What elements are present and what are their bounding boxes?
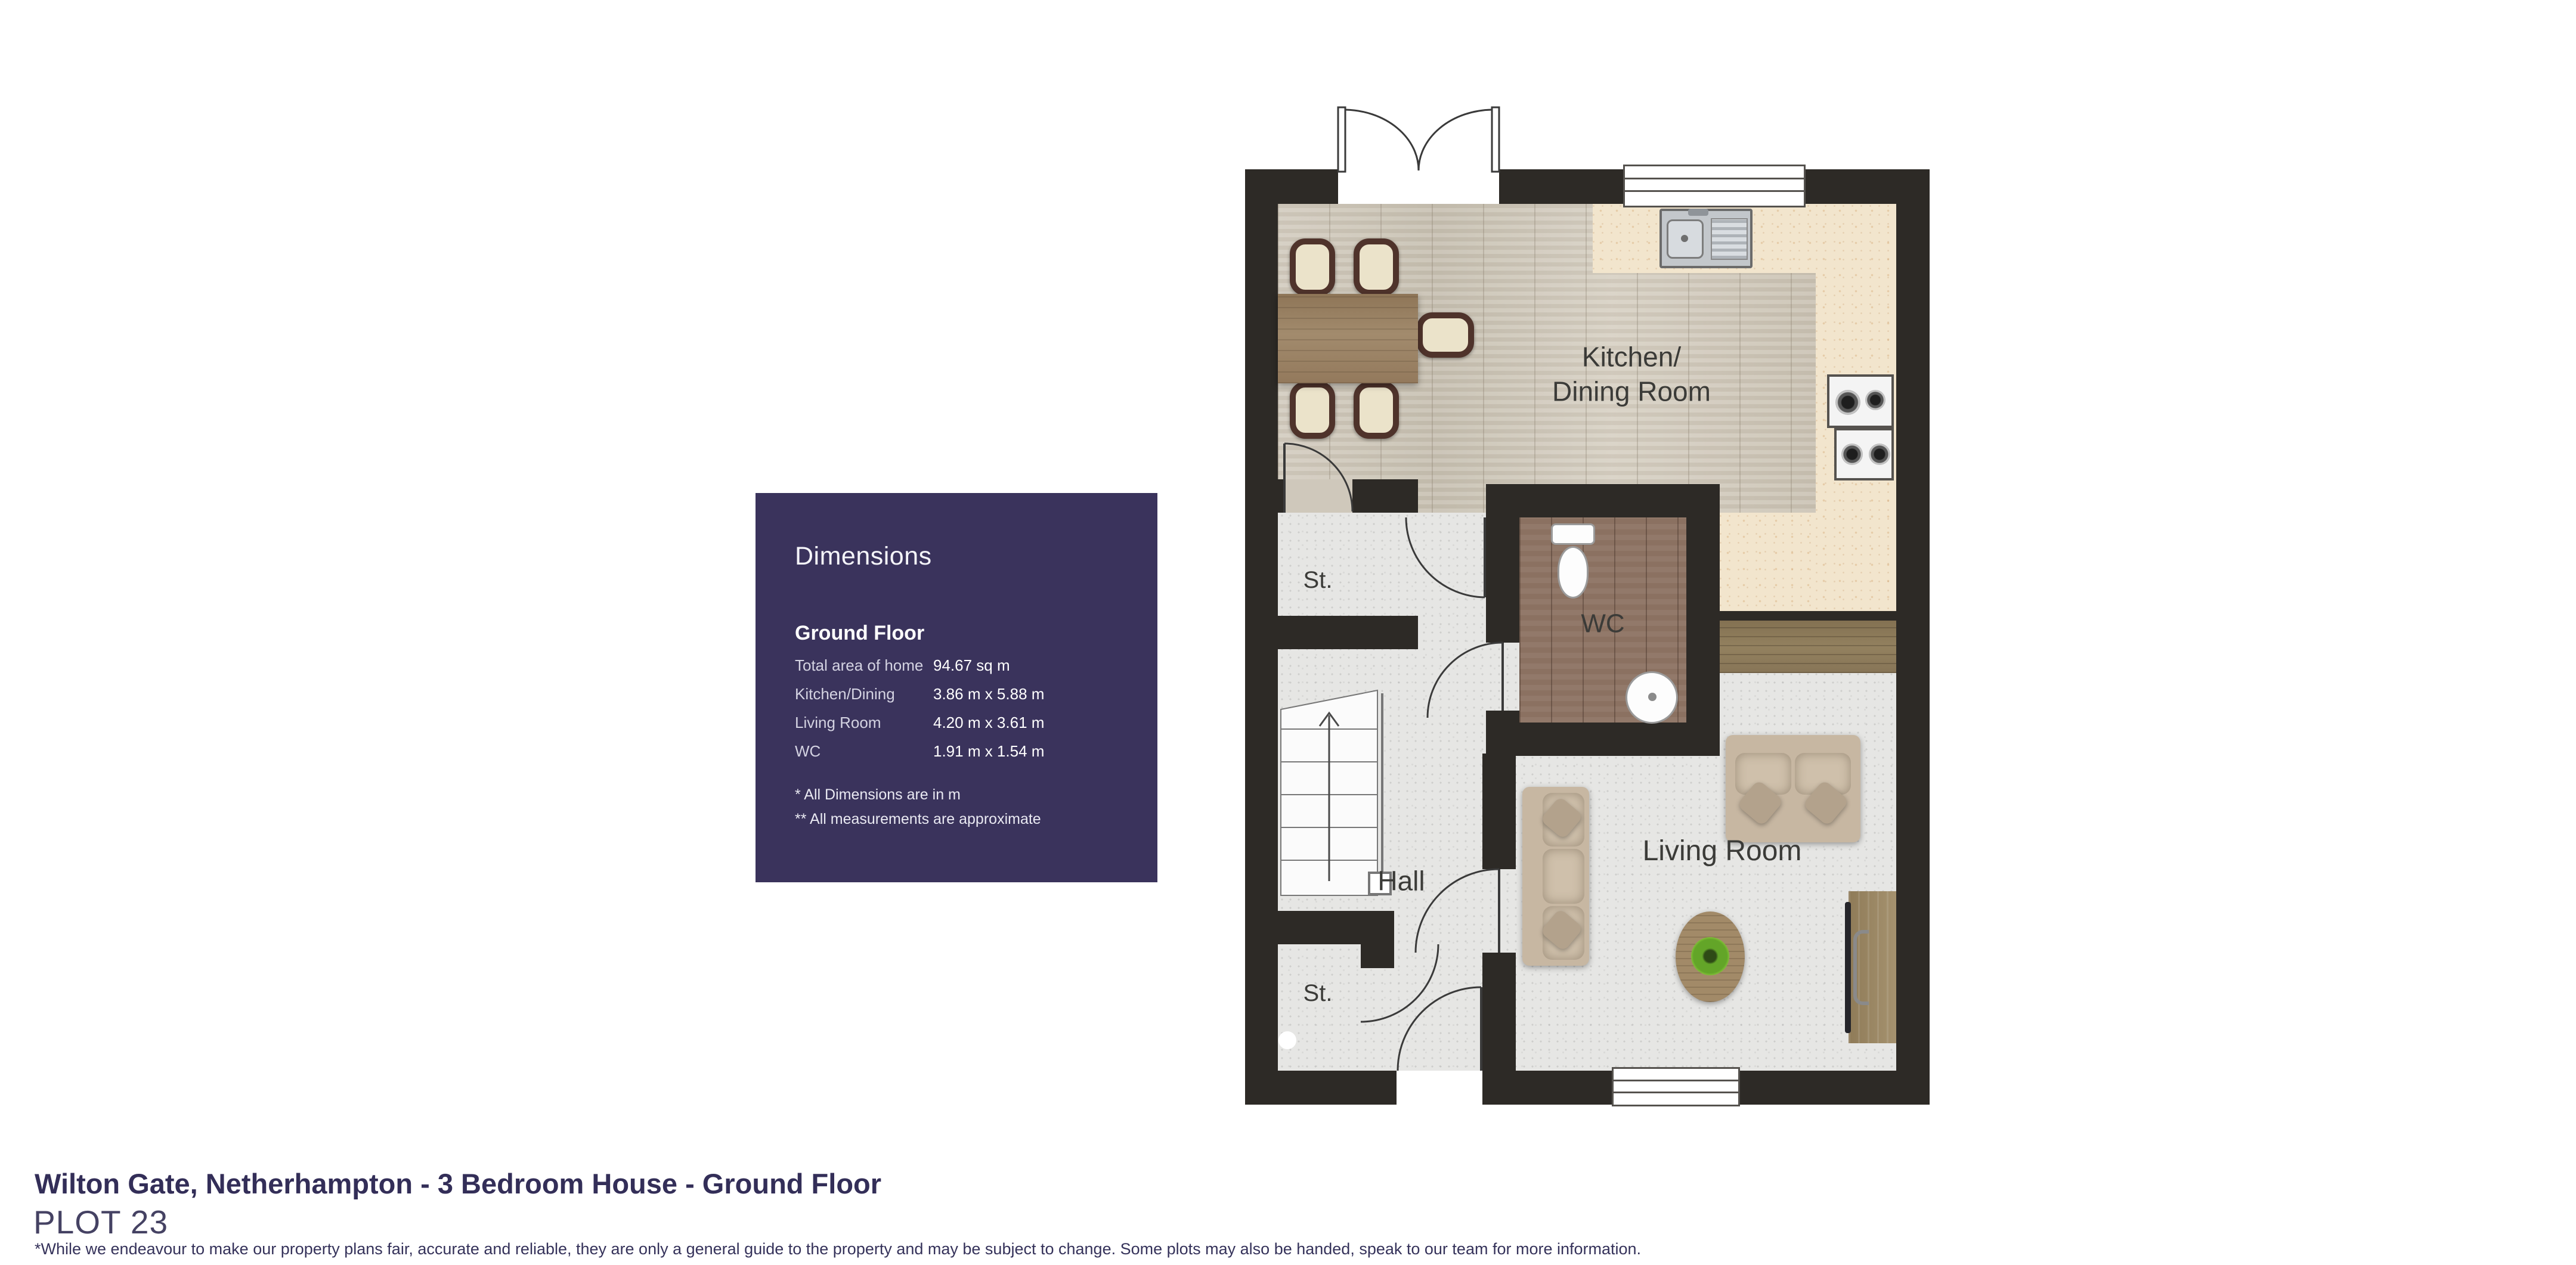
wc-door-icon (1428, 643, 1503, 718)
plot-number: PLOT 23 (33, 1203, 168, 1241)
dining-chair (1417, 312, 1474, 358)
dimensions-rows: Total area of home 94.67 sq m Kitchen/Di… (795, 650, 1129, 765)
dimension-label: WC (795, 742, 821, 761)
dimension-label: Living Room (795, 714, 881, 732)
floor-plan: Kitchen/ Dining Room WC Hall Living Room… (1245, 106, 1930, 1105)
dining-table (1278, 294, 1418, 383)
dimension-value: 94.67 sq m (933, 656, 1010, 675)
dimensions-section-title: Ground Floor (795, 622, 924, 645)
room-label-wc: WC (1581, 607, 1624, 640)
room-label-hall: Hall (1377, 864, 1425, 898)
dining-chair (1290, 238, 1335, 296)
page-title: Wilton Gate, Netherhampton - 3 Bedroom H… (35, 1167, 881, 1200)
dining-chair (1354, 238, 1399, 296)
kitchen-hall-door-icon (1406, 517, 1485, 597)
hob-bottom-icon (1834, 428, 1894, 480)
french-doors-icon (1338, 107, 1499, 204)
dimension-row: WC 1.91 m x 1.54 m (795, 736, 1129, 765)
tv-icon (1845, 902, 1851, 1033)
dimension-row: Kitchen/Dining 3.86 m x 5.88 m (795, 679, 1129, 708)
dimensions-panel-title: Dimensions (795, 542, 932, 571)
room-label-storage-bottom: St. (1304, 978, 1333, 1008)
dimension-label: Total area of home (795, 656, 923, 675)
floorplan-page: Dimensions Ground Floor Total area of ho… (0, 0, 2576, 1265)
front-door-icon (1398, 987, 1481, 1071)
tv-bracket-icon (1853, 930, 1869, 1005)
room-label-kitchen-dining: Kitchen/ Dining Room (1552, 340, 1711, 409)
dining-chair (1354, 382, 1399, 439)
kitchen-storage-door-icon (1283, 444, 1352, 513)
dimensions-footnote-2: ** All measurements are approximate (795, 811, 1041, 828)
sofa-loveseat (1726, 735, 1860, 842)
sofa-three-seater (1522, 787, 1589, 966)
room-label-living-room: Living Room (1643, 833, 1802, 869)
storage-closet-door-icon (1361, 944, 1438, 1022)
hob-top-icon (1827, 374, 1894, 428)
disclaimer-text: *While we endeavour to make our property… (35, 1240, 1641, 1258)
room-label-storage-top: St. (1304, 565, 1333, 595)
dimension-value: 4.20 m x 3.61 m (933, 714, 1044, 732)
stairs-icon (1281, 690, 1391, 895)
dimension-value: 3.86 m x 5.88 m (933, 685, 1044, 703)
dimensions-footnote-1: * All Dimensions are in m (795, 786, 961, 804)
dimension-value: 1.91 m x 1.54 m (933, 742, 1044, 761)
dimension-row: Living Room 4.20 m x 3.61 m (795, 708, 1129, 736)
hall-living-door-icon (1416, 869, 1499, 953)
dimension-label: Kitchen/Dining (795, 685, 895, 703)
dimension-row: Total area of home 94.67 sq m (795, 650, 1129, 679)
kitchen-sink-icon (1659, 209, 1753, 268)
dining-chair (1290, 382, 1335, 439)
plant-icon (1691, 937, 1729, 975)
dimensions-panel: Dimensions Ground Floor Total area of ho… (756, 493, 1157, 882)
